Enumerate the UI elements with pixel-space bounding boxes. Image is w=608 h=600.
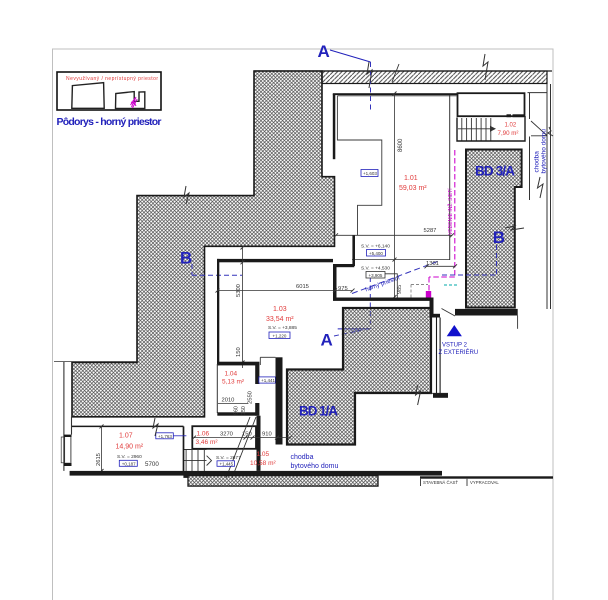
- svg-text:5287: 5287: [424, 228, 437, 234]
- svg-text:1.01: 1.01: [404, 175, 418, 182]
- svg-text:+5,400: +5,400: [369, 251, 383, 256]
- svg-text:1.07: 1.07: [119, 433, 133, 440]
- svg-text:A: A: [321, 331, 333, 350]
- svg-text:bytového domu: bytového domu: [291, 463, 339, 470]
- svg-text:VEDENIE INŽ. SIETÍ: VEDENIE INŽ. SIETÍ: [446, 188, 454, 235]
- svg-text:1.03: 1.03: [273, 306, 287, 313]
- svg-text:1.06: 1.06: [197, 431, 210, 438]
- svg-text:+1,445: +1,445: [220, 461, 234, 466]
- svg-text:BD 3/A: BD 3/A: [475, 164, 515, 179]
- svg-text:3270: 3270: [220, 432, 233, 438]
- svg-text:5700: 5700: [145, 461, 159, 468]
- svg-text:150: 150: [241, 406, 247, 415]
- svg-text:2010: 2010: [222, 398, 235, 404]
- svg-text:BD 1/A: BD 1/A: [299, 404, 338, 419]
- svg-text:S.V. = +3,885: S.V. = +3,885: [268, 325, 297, 331]
- svg-text:+1,603: +1,603: [363, 171, 377, 176]
- svg-text:6015: 6015: [296, 284, 309, 290]
- svg-text:A: A: [318, 42, 330, 61]
- svg-text:1.05: 1.05: [257, 451, 270, 458]
- svg-text:B: B: [180, 249, 192, 268]
- svg-text:975: 975: [338, 286, 348, 292]
- svg-text:3,46 m²: 3,46 m²: [196, 439, 219, 446]
- svg-text:VYPRACOVAL: VYPRACOVAL: [470, 480, 499, 485]
- svg-text:1.04: 1.04: [225, 371, 238, 378]
- svg-text:14,90 m²: 14,90 m²: [116, 444, 144, 451]
- svg-text:+1,763: +1,763: [158, 434, 172, 439]
- svg-text:+1,441: +1,441: [261, 378, 275, 383]
- svg-text:5300: 5300: [236, 284, 242, 297]
- svg-text:7,90 m²: 7,90 m²: [498, 130, 519, 137]
- svg-text:960: 960: [234, 406, 240, 415]
- svg-text:+1,220: +1,220: [273, 333, 287, 338]
- svg-text:Z EXTERIÉRU: Z EXTERIÉRU: [439, 349, 479, 356]
- svg-text:5,13 m²: 5,13 m²: [222, 379, 245, 386]
- svg-text:S.V. = 2677: S.V. = 2677: [216, 455, 241, 461]
- svg-text:bytového domu: bytového domu: [540, 129, 547, 174]
- svg-text:2550: 2550: [248, 391, 254, 404]
- svg-text:chodba: chodba: [291, 454, 314, 461]
- svg-text:S.V. = +4,530: S.V. = +4,530: [361, 265, 390, 271]
- svg-text:+3,905: +3,905: [369, 273, 383, 278]
- svg-text:10,58 m²: 10,58 m²: [250, 460, 276, 467]
- svg-text:Pôdorys - horný priestor: Pôdorys - horný priestor: [57, 116, 162, 128]
- svg-text:Nevyužívaný / neprístupný prie: Nevyužívaný / neprístupný priestor: [66, 76, 158, 82]
- svg-text:59,03 m²: 59,03 m²: [399, 185, 427, 192]
- svg-text:2615: 2615: [96, 453, 102, 466]
- svg-text:150: 150: [236, 347, 242, 357]
- svg-text:S.V. = +6,140: S.V. = +6,140: [361, 244, 390, 250]
- svg-text:VSTUP 2: VSTUP 2: [442, 343, 468, 349]
- svg-text:S.V. = 2960: S.V. = 2960: [117, 454, 142, 460]
- svg-text:STAVEBNÁ ČASŤ: STAVEBNÁ ČASŤ: [423, 480, 458, 485]
- svg-text:33,54 m²: 33,54 m²: [266, 316, 294, 323]
- svg-text:1.02: 1.02: [505, 122, 517, 128]
- svg-text:985: 985: [397, 285, 403, 294]
- svg-text:1301: 1301: [426, 261, 439, 267]
- svg-text:+0,187: +0,187: [122, 461, 136, 466]
- svg-text:910: 910: [262, 432, 272, 438]
- svg-text:8600: 8600: [398, 138, 404, 152]
- svg-text:B: B: [493, 228, 505, 247]
